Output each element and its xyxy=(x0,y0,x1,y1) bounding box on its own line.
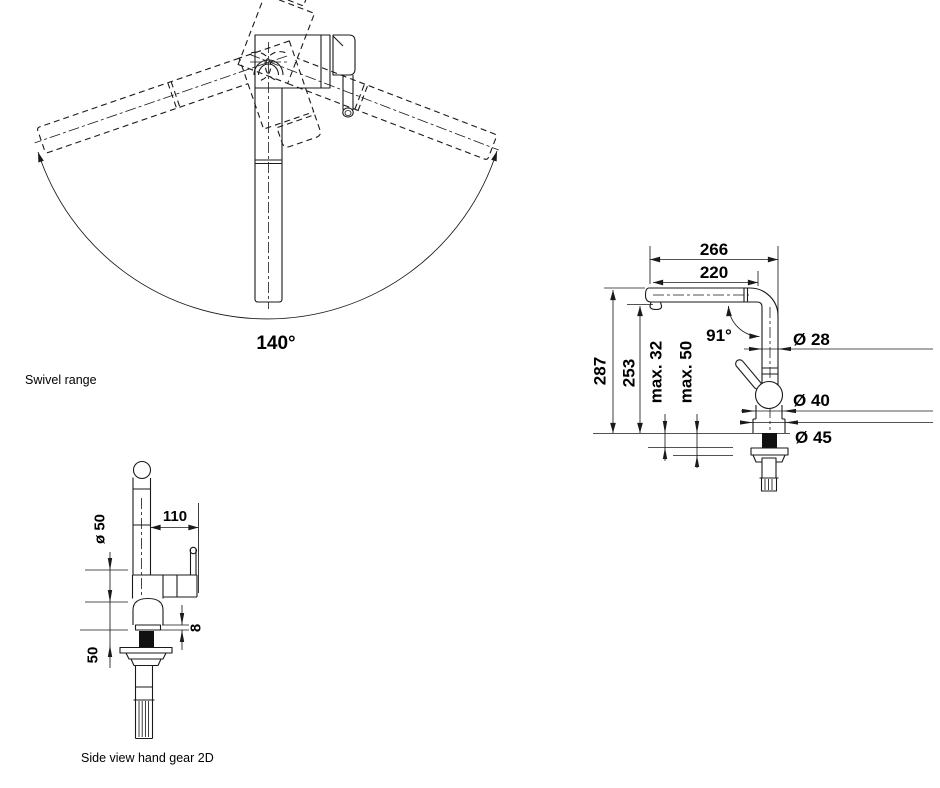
hand-gear-view: 110 ø 50 50 8 Side view hand gear 2D xyxy=(80,462,214,766)
faucet-dimension-drawing: 140° Swivel range xyxy=(0,0,940,788)
flange-claws xyxy=(753,455,785,462)
dim-base-diameter-50: ø 50 xyxy=(92,514,109,544)
flange-steps xyxy=(126,653,166,666)
angle-arc-91 xyxy=(729,306,760,337)
shank-thread-2 xyxy=(139,701,149,737)
dim-base-height-8: 8 xyxy=(188,624,205,632)
spout-end-circle xyxy=(134,462,151,479)
swivel-range-view: 140° Swivel range xyxy=(25,0,530,387)
dim-height-50: 50 xyxy=(85,647,102,664)
dim-max-50: max. 50 xyxy=(677,341,696,403)
swivel-dashed-left xyxy=(30,40,322,225)
dim-spout-angle: 91° xyxy=(706,326,732,345)
faucet-top-view xyxy=(250,35,355,309)
side-view: 266 220 287 253 max. 32 max. 50 xyxy=(591,240,934,491)
body-block xyxy=(133,575,198,599)
swivel-angle-label: 140° xyxy=(256,333,295,354)
swivel-arc xyxy=(38,151,497,319)
shank-2 xyxy=(134,666,155,739)
dim-spout-height: 253 xyxy=(620,359,639,387)
dim-body-diameter: Ø 40 xyxy=(793,391,830,410)
faucet-hand-gear-outline xyxy=(120,462,197,739)
shank-thread xyxy=(762,478,777,491)
dim-lever-reach: 110 xyxy=(163,508,187,525)
mounting-flange xyxy=(751,448,788,455)
ball-body xyxy=(756,382,783,409)
dim-base-diameter: Ø 45 xyxy=(795,428,832,447)
seal-gasket xyxy=(762,433,777,448)
hand-gear-caption: Side view hand gear 2D xyxy=(81,751,214,765)
handle-base-chamfer xyxy=(333,36,343,46)
aerator xyxy=(650,302,662,310)
dim-spout-reach: 220 xyxy=(700,263,728,282)
dim-projection-width: 266 xyxy=(700,240,728,259)
flange-plate xyxy=(120,648,172,654)
swivel-view-caption: Swivel range xyxy=(25,373,97,387)
seal-gasket-2 xyxy=(139,631,154,648)
dim-height-total: 287 xyxy=(591,357,610,385)
base-ring xyxy=(136,625,161,630)
base-dome xyxy=(133,599,163,626)
dim-spout-diameter: Ø 28 xyxy=(793,330,830,349)
dim-max-32: max. 32 xyxy=(647,341,666,403)
spout-joint xyxy=(744,288,748,302)
technical-drawing-svg: 140° Swivel range xyxy=(0,0,940,788)
shank xyxy=(760,462,779,478)
